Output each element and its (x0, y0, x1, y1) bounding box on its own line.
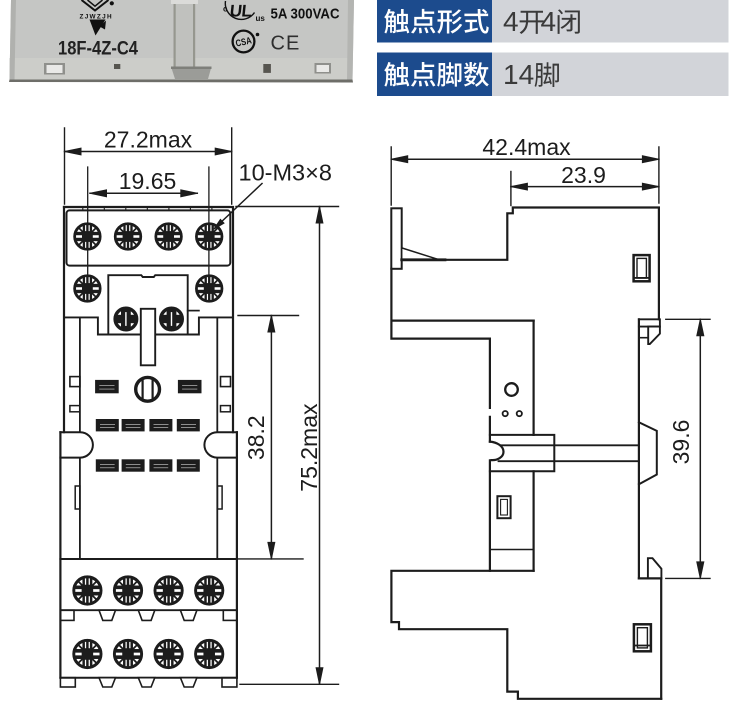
svg-text:us: us (256, 14, 266, 23)
svg-text:CE: CE (271, 33, 301, 55)
svg-text:18F-4Z-C4: 18F-4Z-C4 (58, 39, 138, 60)
svg-text:38.2: 38.2 (243, 415, 269, 460)
svg-text:4: 4 (541, 6, 557, 37)
svg-text:75.2max: 75.2max (296, 403, 322, 492)
svg-text:27.2max: 27.2max (104, 127, 193, 153)
svg-text:4: 4 (503, 6, 519, 37)
svg-text:23.9: 23.9 (561, 162, 606, 188)
svg-text:39.6: 39.6 (668, 420, 694, 465)
svg-text:10-M3×8: 10-M3×8 (239, 160, 332, 186)
svg-text:42.4max: 42.4max (482, 134, 571, 160)
svg-text:19.65: 19.65 (119, 168, 177, 194)
svg-text:5A 300VAC: 5A 300VAC (271, 6, 340, 23)
svg-text:ZJWZJH: ZJWZJH (80, 14, 113, 21)
svg-text:14: 14 (503, 59, 534, 90)
